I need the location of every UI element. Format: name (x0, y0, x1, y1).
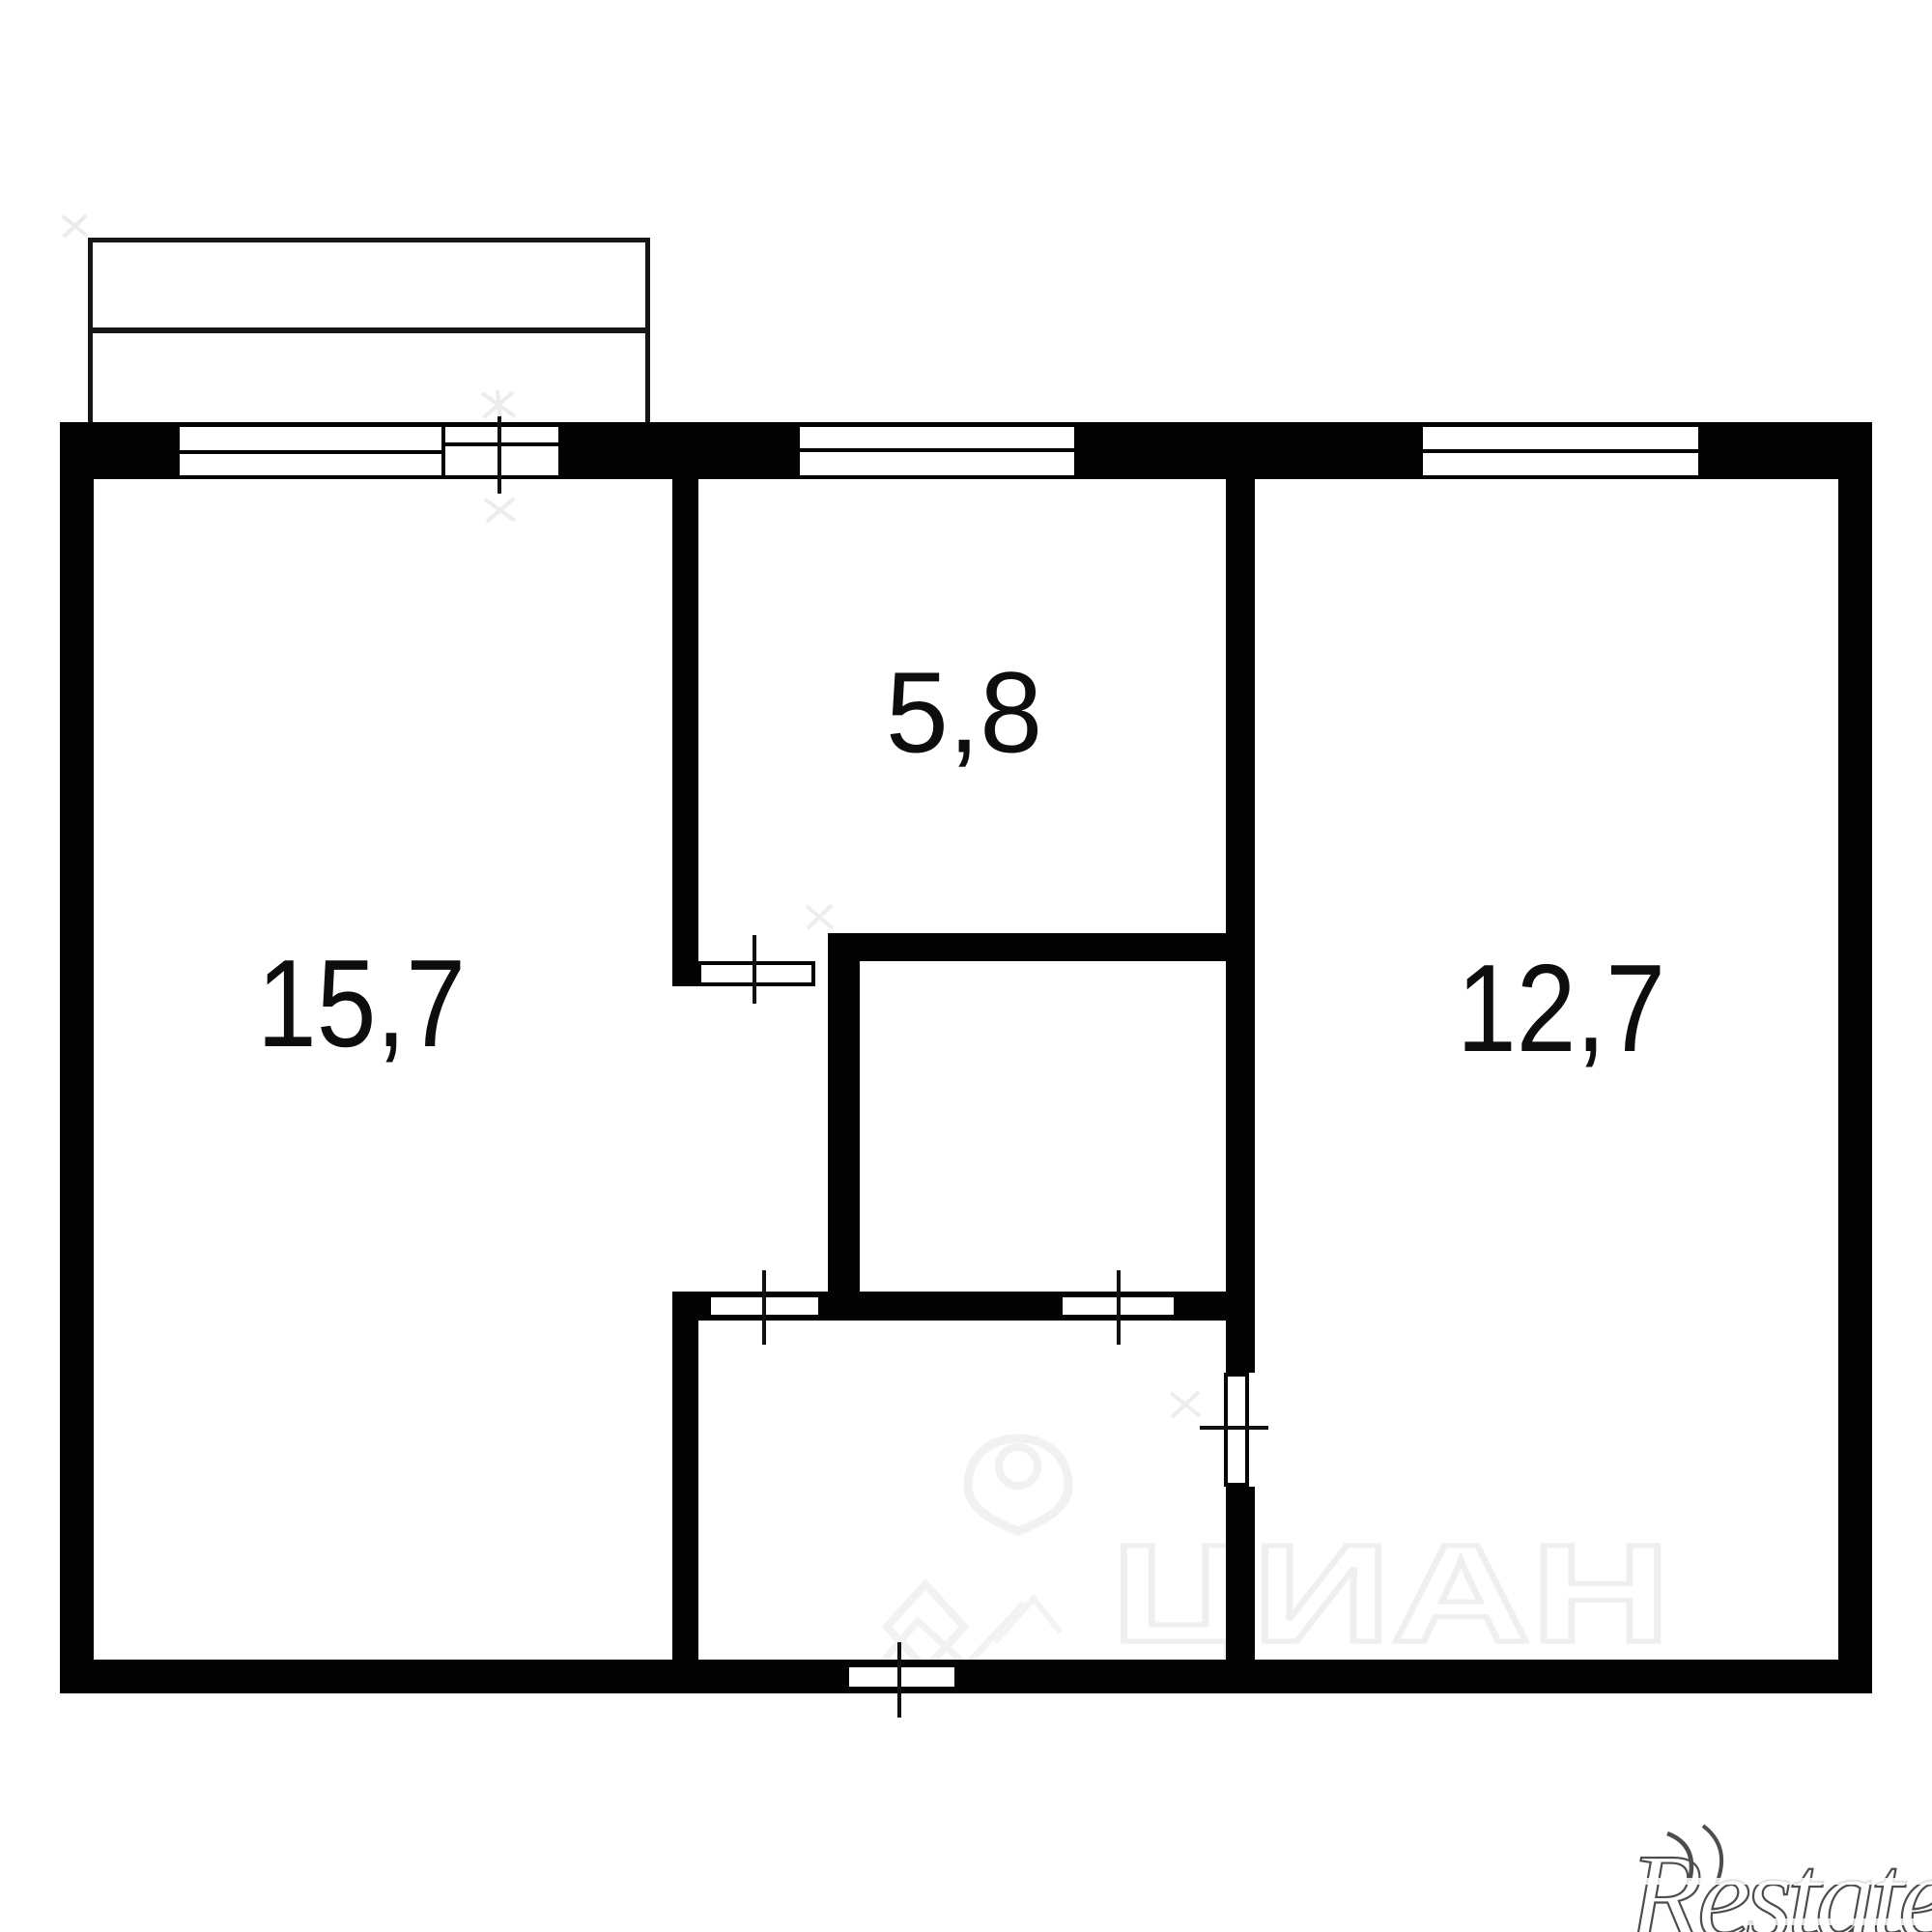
svg-text:ЦИАН: ЦИАН (1111, 1516, 1670, 1671)
